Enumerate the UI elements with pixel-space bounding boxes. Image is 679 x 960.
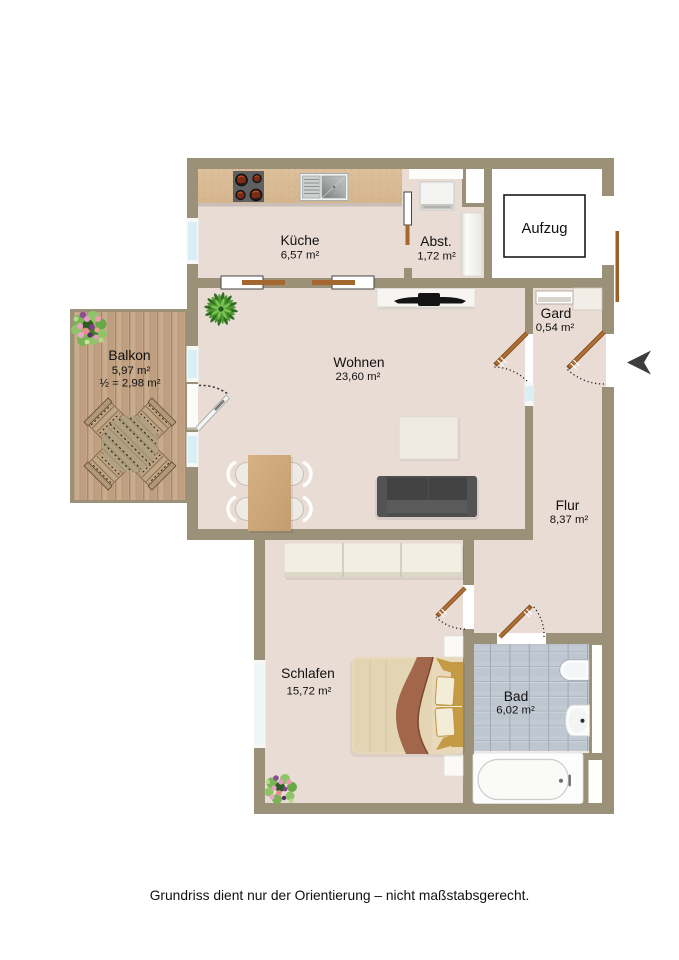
svg-text:Bad: Bad [504,689,529,704]
svg-text:Wohnen: Wohnen [333,355,384,370]
svg-text:8,37 m²: 8,37 m² [550,514,589,526]
svg-text:0,54 m²: 0,54 m² [536,322,575,334]
svg-text:½ = 2,98 m²: ½ = 2,98 m² [99,378,160,390]
svg-text:6,02 m²: 6,02 m² [496,705,535,717]
svg-text:5,97 m²: 5,97 m² [112,365,151,377]
svg-text:Balkon: Balkon [108,348,150,363]
svg-text:6,57 m²: 6,57 m² [281,250,320,262]
svg-text:Flur: Flur [556,498,580,513]
svg-text:Küche: Küche [280,233,319,248]
svg-text:Schlafen: Schlafen [281,666,335,681]
svg-text:Abst.: Abst. [420,234,451,249]
svg-text:23,60 m²: 23,60 m² [336,371,381,383]
svg-text:Gard: Gard [541,306,572,321]
svg-text:Grundriss dient nur der Orient: Grundriss dient nur der Orientierung – n… [150,888,530,903]
svg-text:15,72 m²: 15,72 m² [287,686,332,698]
svg-text:Aufzug: Aufzug [521,221,567,237]
svg-text:1,72 m²: 1,72 m² [417,251,456,263]
